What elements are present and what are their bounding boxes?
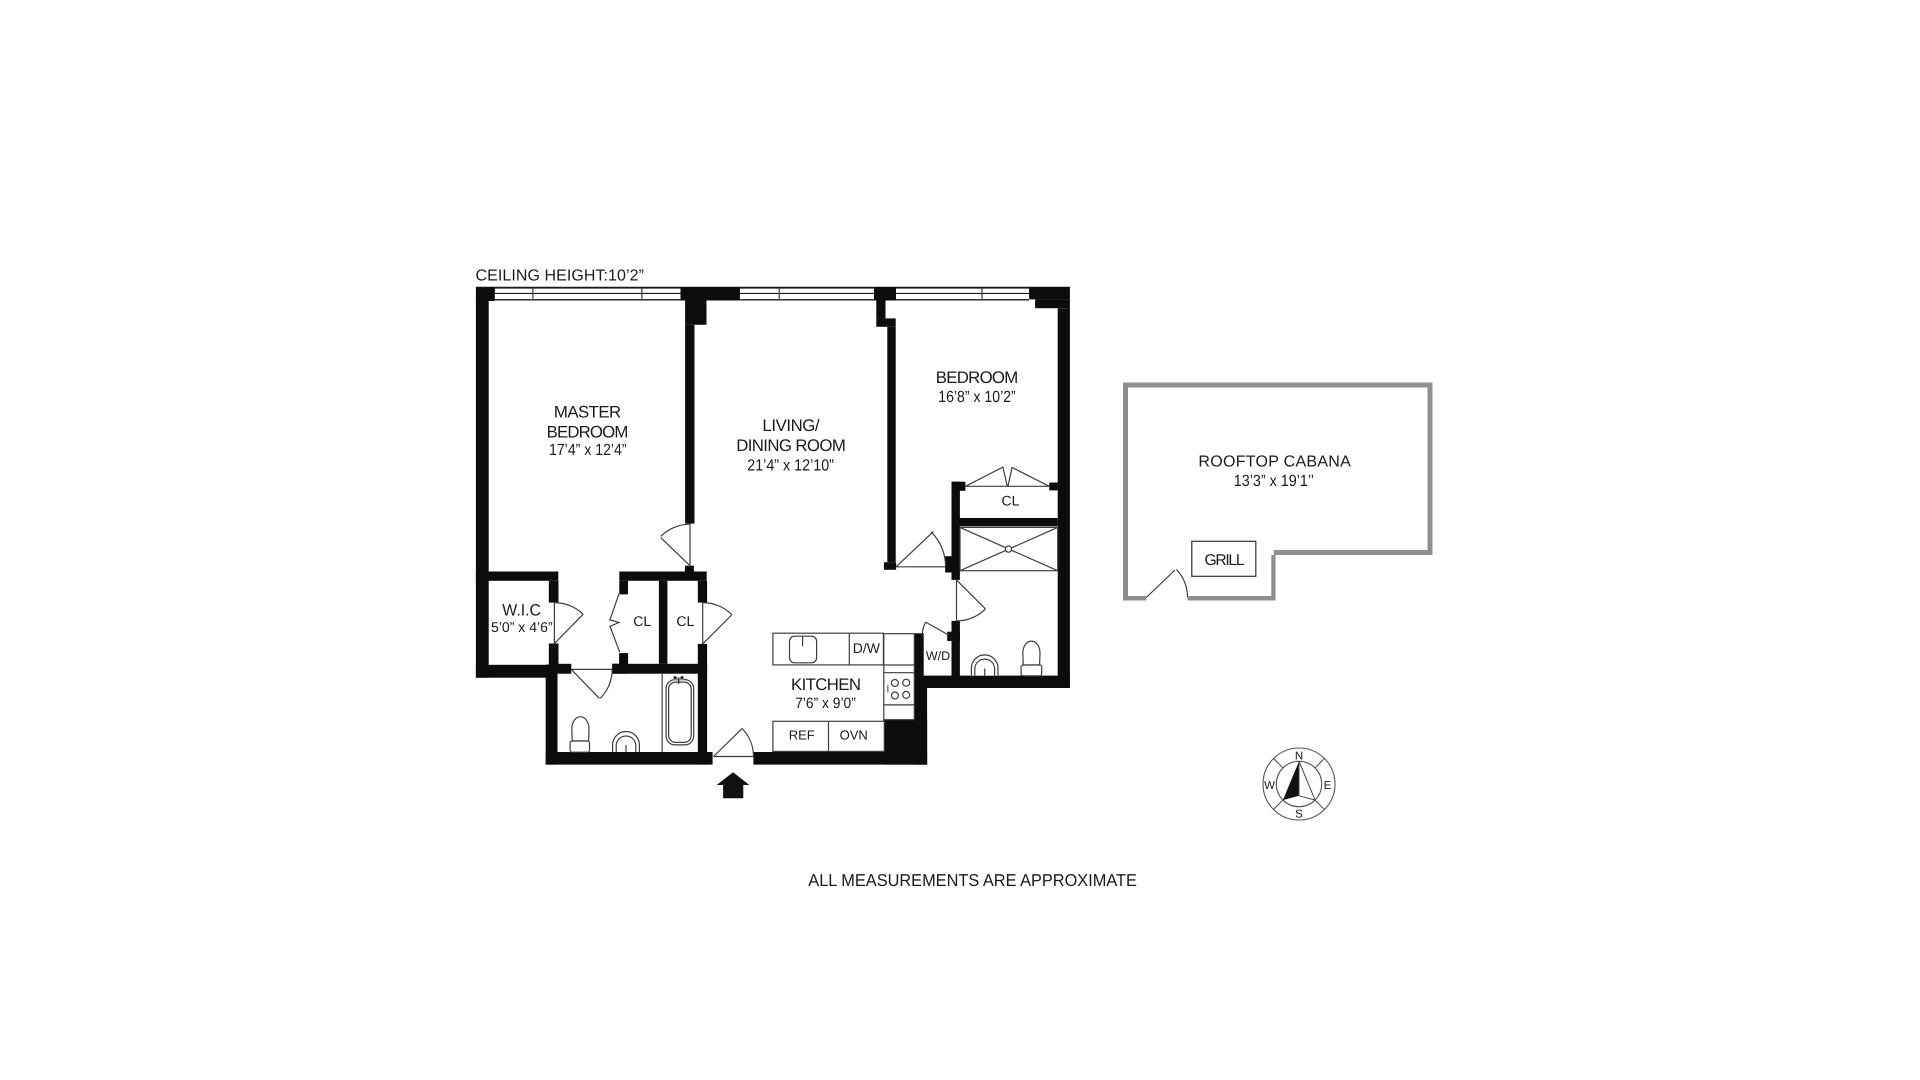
svg-text:DINING ROOM: DINING ROOM: [736, 436, 846, 455]
svg-text:W: W: [1264, 780, 1275, 792]
svg-text:KITCHEN: KITCHEN: [791, 675, 861, 694]
svg-text:OVN: OVN: [840, 728, 868, 743]
svg-text:CL: CL: [633, 613, 651, 629]
svg-text:D/W: D/W: [853, 640, 881, 656]
svg-text:CEILING HEIGHT:10’2”: CEILING HEIGHT:10’2”: [476, 267, 644, 284]
svg-text:W.I.C: W.I.C: [502, 601, 541, 619]
svg-text:21’4” x 12’10”: 21’4” x 12’10”: [747, 456, 834, 474]
svg-text:BEDROOM: BEDROOM: [547, 422, 629, 441]
svg-text:LIVING/: LIVING/: [762, 416, 820, 435]
svg-text:CL: CL: [676, 613, 694, 629]
svg-text:REF: REF: [789, 728, 815, 743]
svg-text:13’3” x 19’1’’: 13’3” x 19’1’’: [1234, 472, 1314, 490]
svg-text:BEDROOM: BEDROOM: [936, 368, 1019, 387]
svg-text:16’8” x 10’2”: 16’8” x 10’2”: [938, 388, 1016, 406]
svg-text:CL: CL: [1002, 493, 1020, 509]
svg-text:ROOFTOP CABANA: ROOFTOP CABANA: [1198, 453, 1351, 470]
svg-text:ALL MEASUREMENTS ARE APPROXIMA: ALL MEASUREMENTS ARE APPROXIMATE: [808, 870, 1137, 890]
svg-text:5’0” x 4’6”: 5’0” x 4’6”: [491, 620, 553, 636]
svg-text:17’4” x 12’4”: 17’4” x 12’4”: [549, 441, 627, 459]
svg-text:GRILL: GRILL: [1205, 552, 1245, 569]
svg-text:N: N: [1295, 751, 1303, 763]
svg-text:MASTER: MASTER: [554, 403, 621, 422]
svg-text:7’6” x 9’0”: 7’6” x 9’0”: [795, 695, 856, 712]
svg-text:E: E: [1324, 780, 1332, 792]
svg-text:W/D: W/D: [926, 649, 950, 663]
svg-text:S: S: [1295, 809, 1303, 821]
